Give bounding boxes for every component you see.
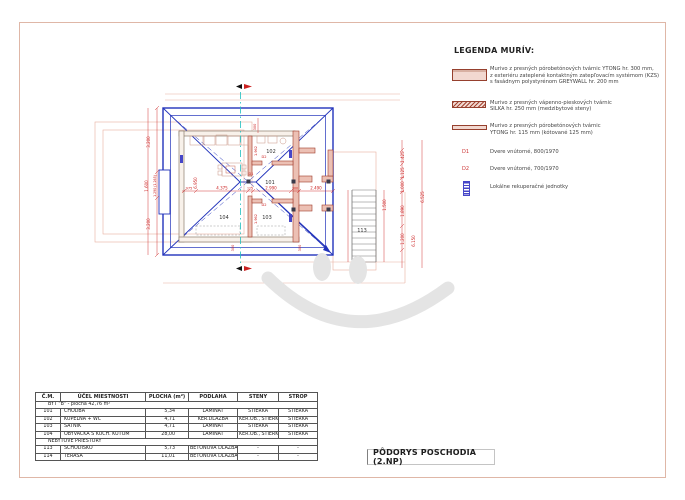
- cell: TERASA: [61, 453, 146, 460]
- door-label: D2: [261, 203, 266, 207]
- dim-label: 3.200: [146, 218, 151, 230]
- dim-label: 1.890: [400, 205, 405, 217]
- dim-label: 125: [247, 187, 253, 191]
- cell: 103: [36, 424, 61, 431]
- legend-title: LEGENDA MURÍV:: [454, 46, 670, 55]
- cell: CHODBA: [61, 409, 146, 416]
- group-label: NEBYTOVÉ PRIESTORY: [36, 439, 318, 446]
- table-group-row: NEBYTOVÉ PRIESTORY: [36, 439, 318, 446]
- dim-label: 300: [231, 245, 235, 252]
- table-row: 101 CHODBA 5,34 LAMINÁT STIERKA STIERKA: [36, 409, 318, 416]
- room-table: Č.M. ÚČEL MIESTNOSTI PLOCHA (m²) PODLAHA…: [35, 392, 317, 461]
- col-header: PLOCHA (m²): [146, 393, 189, 402]
- dim-label: 1.425: [400, 151, 405, 163]
- legend-item-text: Murivo z presných pórobetónových tvárnic…: [490, 66, 659, 86]
- room-label: 102: [266, 149, 276, 155]
- recuperation-unit-icon: [463, 181, 470, 196]
- cell: KER.DLAŽBA: [189, 416, 238, 423]
- cell: BETÓNOVÁ DLAŽBA: [189, 453, 238, 460]
- dim-label: 1.125: [400, 167, 405, 179]
- door-code-d2: D2: [452, 166, 469, 172]
- cell: 101: [36, 409, 61, 416]
- room-label: 103: [262, 215, 272, 221]
- dim-label: 1.962: [254, 214, 258, 224]
- cell: ŠATNÍK: [61, 424, 146, 431]
- col-header: Č.M.: [36, 393, 61, 402]
- room-label: 104: [219, 215, 229, 221]
- dim-label: 6.950: [193, 177, 198, 189]
- col-header: STENY: [238, 393, 279, 402]
- cell: 104: [36, 431, 61, 438]
- table-row: 113 SCHODISKO 5,73 BETÓNOVÁ DLAŽBA - -: [36, 446, 318, 453]
- table-row: 104 OBÝVAČKA S KUCH. KÚTOM 28,00 LAMINÁT…: [36, 431, 318, 438]
- cell: STIERKA: [238, 409, 279, 416]
- cell: 114: [36, 453, 61, 460]
- drawing-title: PÔDORYS POSCHODIA (2.NP): [368, 448, 494, 466]
- dim-label: 1.962: [254, 146, 258, 156]
- dim-label: 1.290 (1.265): [153, 175, 157, 197]
- dim-label: 2.990: [265, 186, 277, 191]
- cell: -: [279, 446, 318, 453]
- cell: LAMINÁT: [189, 424, 238, 431]
- cell: 4,71: [146, 424, 189, 431]
- cell: OBÝVAČKA S KUCH. KÚTOM: [61, 431, 146, 438]
- dim-label: 1.600: [144, 180, 149, 192]
- dim-label: 6.525: [420, 191, 425, 203]
- dim-label: 2.490: [310, 186, 322, 191]
- cell: KÚPEĽŇA + WC: [61, 416, 146, 423]
- cell: 4,71: [146, 416, 189, 423]
- legend-item-ytong115: Murivo z presných pórobetónových tvárnic…: [452, 123, 670, 136]
- legend-item-recuperation: Lokálne rekuperačné jednotky: [452, 181, 670, 196]
- dim-label: 6.150: [411, 235, 416, 247]
- cell: LAMINÁT: [189, 431, 238, 438]
- legend-item-text: Lokálne rekuperačné jednotky: [490, 184, 568, 191]
- dim-label: 1.200: [400, 233, 405, 245]
- staircase: [352, 190, 376, 262]
- cell: -: [238, 453, 279, 460]
- dim-label: 300: [298, 245, 302, 252]
- room-schedule: Č.M. ÚČEL MIESTNOSTI PLOCHA (m²) PODLAHA…: [35, 392, 318, 461]
- cell: STIERKA: [238, 424, 279, 431]
- dim-label: 300: [292, 187, 298, 191]
- cell: STIERKA: [279, 409, 318, 416]
- dimension-labels: 3.200 1.290 (1.265) 1.600 3.200 6.950 97…: [144, 124, 425, 252]
- cell: KER.OB., STIERKA: [238, 416, 279, 423]
- table-header-row: Č.M. ÚČEL MIESTNOSTI PLOCHA (m²) PODLAHA…: [36, 393, 318, 402]
- col-header: PODLAHA: [189, 393, 238, 402]
- table-row: 114 TERASA 11,01 BETÓNOVÁ DLAŽBA - -: [36, 453, 318, 460]
- door-label: D1: [248, 172, 253, 176]
- title-block: PÔDORYS POSCHODIA (2.NP): [367, 449, 495, 465]
- cell: 11,01: [146, 453, 189, 460]
- wall-ytong300-swatch: [452, 69, 487, 81]
- dim-label: 1.000: [400, 181, 405, 193]
- group-label: BYT "B" - plocha 42,76 m²: [36, 402, 318, 409]
- cell: LAMINÁT: [189, 409, 238, 416]
- legend: LEGENDA MURÍV: Murivo z presných pórobet…: [452, 46, 670, 196]
- dim-label: 300: [253, 124, 257, 131]
- dim-label: 4.375: [216, 186, 228, 191]
- legend-item-silka250: Murivo z presných vápenno-pieskových tvá…: [452, 100, 670, 113]
- cell: 102: [36, 416, 61, 423]
- legend-item-door-d1: D1 Dvere vnútorné, 800/1970: [452, 149, 670, 156]
- cell: -: [238, 446, 279, 453]
- legend-item-text: Dvere vnútorné, 700/1970: [490, 166, 559, 173]
- cell: 28,00: [146, 431, 189, 438]
- cell: SCHODISKO: [61, 446, 146, 453]
- cell: BETÓNOVÁ DLAŽBA: [189, 446, 238, 453]
- dim-label: 975: [186, 187, 193, 191]
- table-group-row: BYT "B" - plocha 42,76 m²: [36, 402, 318, 409]
- room-label: 113: [357, 228, 367, 234]
- cell: -: [279, 453, 318, 460]
- cell: STIERKA: [279, 416, 318, 423]
- drawing-sheet: 3.200 1.290 (1.265) 1.600 3.200 6.950 97…: [0, 0, 685, 500]
- table-row: 102 KÚPEĽŇA + WC 4,71 KER.DLAŽBA KER.OB.…: [36, 416, 318, 423]
- door-label: D2: [261, 155, 266, 159]
- wall-silka250-swatch: [452, 101, 486, 108]
- dim-label: 3.200: [146, 136, 151, 148]
- room-label: 101: [265, 180, 275, 186]
- legend-item-text: Dvere vnútorné, 800/1970: [490, 149, 559, 156]
- table-row: 103 ŠATNÍK 4,71 LAMINÁT STIERKA STIERKA: [36, 424, 318, 431]
- watermark-smiley: [268, 253, 448, 322]
- col-header: STROP: [279, 393, 318, 402]
- cell: STIERKA: [279, 431, 318, 438]
- cell: 5,73: [146, 446, 189, 453]
- dim-label: 1.500: [382, 199, 387, 211]
- legend-item-ytong300: Murivo z presných pórobetónových tvárnic…: [452, 66, 670, 86]
- cell: 5,34: [146, 409, 189, 416]
- cell: KER.OB., STIERKA: [238, 431, 279, 438]
- door-code-d1: D1: [452, 149, 469, 155]
- legend-item-door-d2: D2 Dvere vnútorné, 700/1970: [452, 166, 670, 173]
- col-header: ÚČEL MIESTNOSTI: [61, 393, 146, 402]
- cell: STIERKA: [279, 424, 318, 431]
- wall-ytong115-swatch: [452, 125, 487, 130]
- legend-item-text: Murivo z presných pórobetónových tvárnic…: [490, 123, 601, 136]
- legend-item-text: Murivo z presných vápenno-pieskových tvá…: [490, 100, 612, 113]
- columns: [247, 180, 331, 212]
- cell: 113: [36, 446, 61, 453]
